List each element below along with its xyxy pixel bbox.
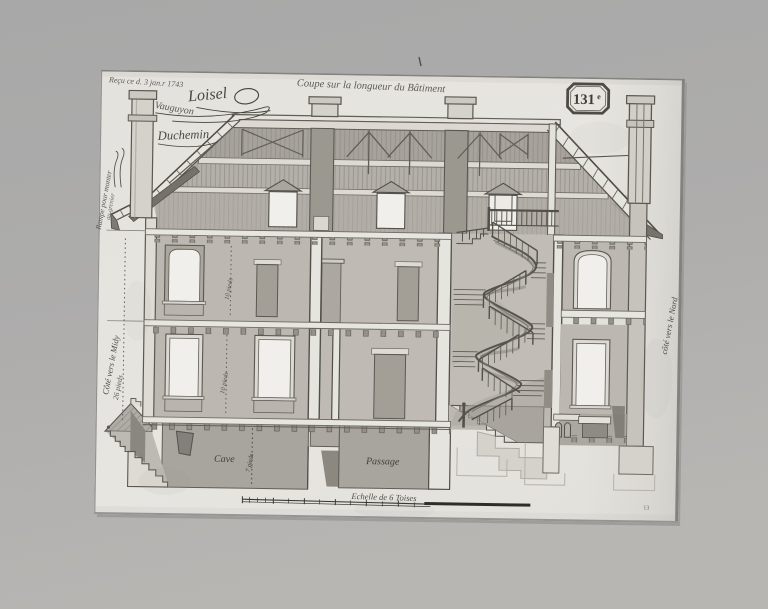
svg-text:e: e — [597, 92, 601, 101]
svg-text:131: 131 — [573, 92, 595, 108]
svg-text:13: 13 — [643, 505, 649, 511]
svg-text:Cave: Cave — [214, 454, 235, 465]
svg-text:Passage: Passage — [365, 456, 400, 468]
svg-text:Duchemin: Duchemin — [157, 127, 210, 143]
svg-text:Loisel: Loisel — [186, 85, 228, 106]
